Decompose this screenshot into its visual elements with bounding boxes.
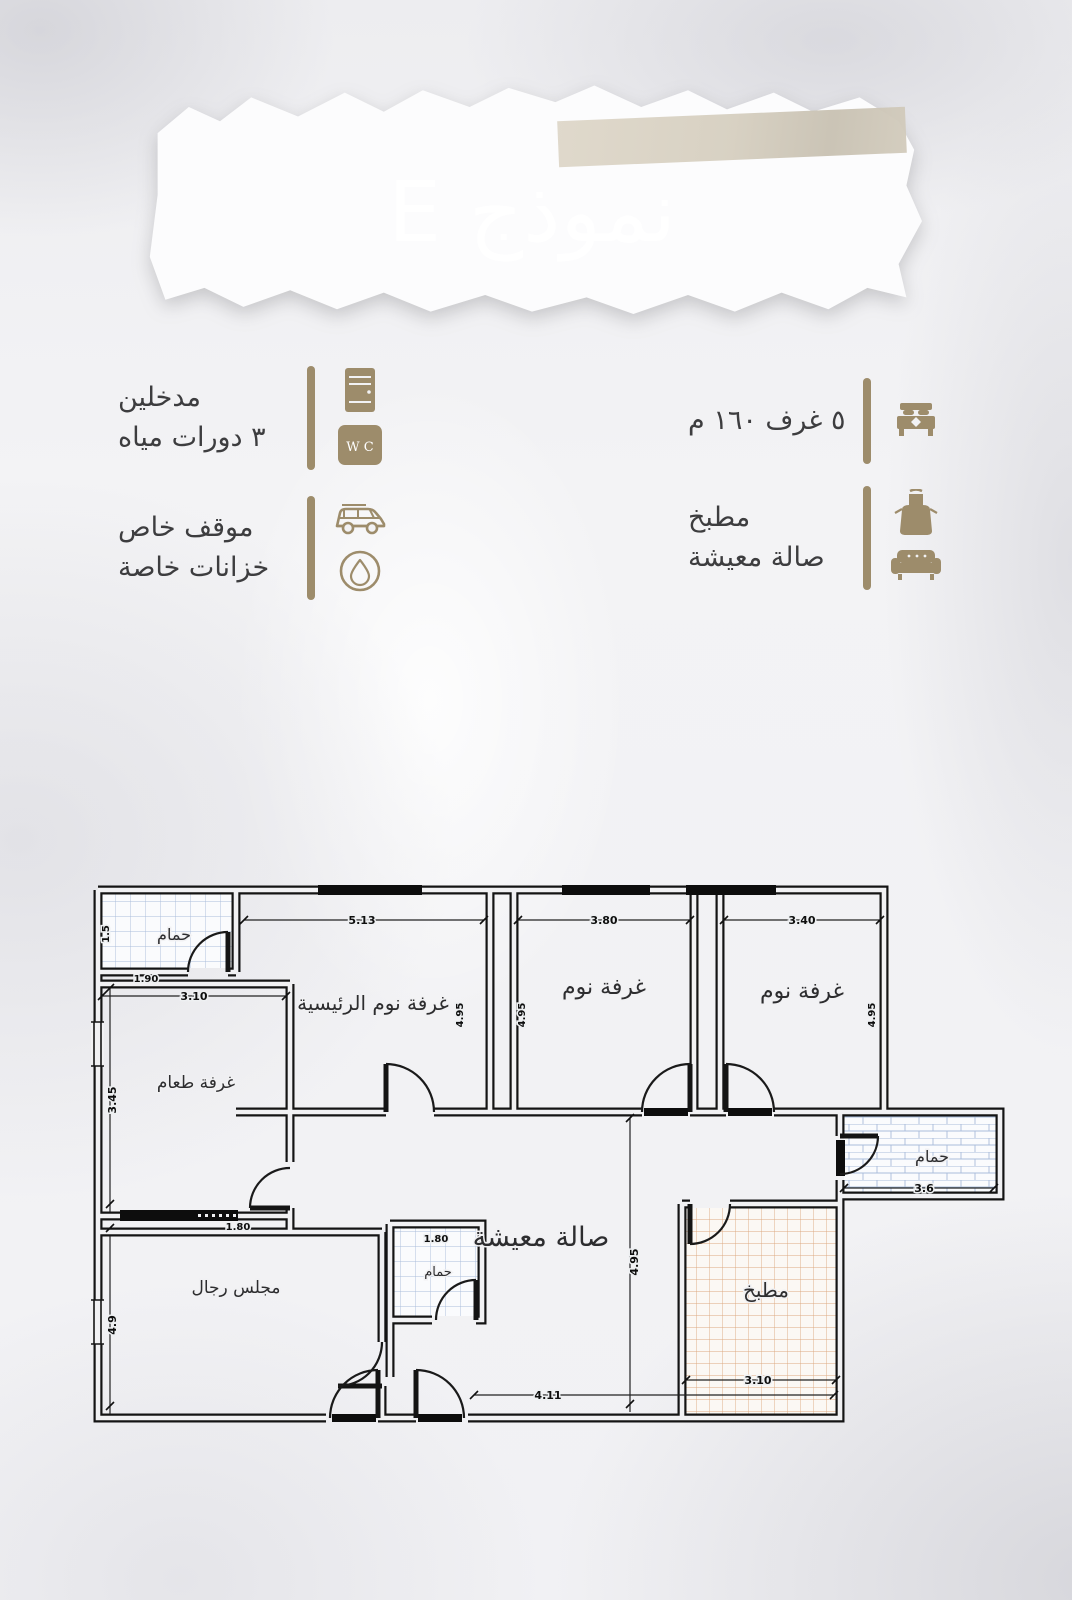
window-bar <box>562 885 650 895</box>
room-bedroom-2: غرفة نوم <box>562 975 646 1000</box>
dim-bath1-w: 1.90 <box>134 974 159 985</box>
svg-text:W C: W C <box>346 440 373 455</box>
dim-majlis-side: 4.9 <box>106 1315 119 1335</box>
window-bar <box>318 885 422 895</box>
floor-plan: 5.13 3.80 3.40 3.10 3.45 4.9 1.80 4.95 4… <box>86 872 1006 1432</box>
feature-kitchen-label: مطبخ <box>688 498 846 538</box>
dim-bed2-side: 4.95 <box>517 1003 528 1028</box>
dim-dining-side: 3.45 <box>106 1086 119 1113</box>
entrance-sill <box>332 1414 376 1422</box>
dim-living-bottom: 4.11 <box>534 1389 561 1402</box>
door-icon <box>341 366 379 418</box>
room-bath-right: حمام <box>915 1147 949 1166</box>
wc-icon: W C <box>337 424 383 470</box>
feature-rooms-area-label: ٥ غرف ١٦٠ م <box>688 401 846 441</box>
feature-bathrooms-label: ٣ دورات مياه <box>118 418 290 458</box>
dim-bath-right-w: 3.6 <box>914 1182 934 1195</box>
feature-living-label: صالة معيشة <box>688 538 846 578</box>
divider-bar <box>307 366 315 470</box>
room-dining: غرفة طعام <box>157 1073 235 1093</box>
divider-bar <box>863 378 871 464</box>
dim-master-top: 5.13 <box>348 914 375 927</box>
dim-bed2-top: 3.80 <box>590 914 617 927</box>
car-icon <box>332 498 388 542</box>
counter-hatch <box>120 1210 238 1221</box>
window-bar <box>686 885 776 895</box>
model-title: نموذج E <box>150 84 914 306</box>
feature-parking-tanks: موقف خاص خزانات خاصة <box>118 496 388 600</box>
feature-tanks-label: خزانات خاصة <box>118 548 290 588</box>
room-living: صالة معيشة <box>473 1222 610 1253</box>
dim-majlis-top: 1.80 <box>226 1222 251 1233</box>
door-sill <box>836 1140 845 1176</box>
room-bedroom-3: غرفة نوم <box>760 979 844 1004</box>
feature-kitchen-living: مطبخ صالة معيشة <box>688 486 944 590</box>
entrance-sill <box>418 1414 462 1422</box>
feature-entrances-wc: مدخلين ٣ دورات مياه W C <box>118 366 388 470</box>
door-sill <box>644 1108 688 1116</box>
dim-bath-small-w: 1.80 <box>424 1234 449 1245</box>
dim-bed3-top: 3.40 <box>788 914 815 927</box>
bed-icon <box>892 397 940 445</box>
dim-bath1-h: 1.5 <box>101 925 112 943</box>
sofa-icon <box>889 547 943 587</box>
dim-living-mid: 4.95 <box>628 1248 641 1275</box>
room-bath-small: حمام <box>424 1265 452 1280</box>
room-majlis: مجلس رجال <box>191 1278 280 1298</box>
room-bath-top-left: حمام <box>157 925 191 944</box>
title-banner: نموذج E <box>150 84 914 306</box>
feature-entrances-label: مدخلين <box>118 378 290 418</box>
water-tank-icon <box>337 548 383 598</box>
divider-bar <box>863 486 871 590</box>
feature-parking-label: موقف خاص <box>118 508 290 548</box>
dim-dining-top: 3.10 <box>180 990 207 1003</box>
feature-rooms-area: ٥ غرف ١٦٠ م <box>688 378 944 464</box>
apron-icon <box>894 489 938 541</box>
poster-page: نموذج E مدخلين ٣ دورات مياه W C <box>0 0 1072 1600</box>
room-master-bedroom: غرفة نوم الرئيسية <box>297 991 449 1015</box>
door-sill <box>728 1108 772 1116</box>
room-kitchen: مطبخ <box>743 1278 789 1302</box>
dim-master-side: 4.95 <box>455 1003 466 1028</box>
dim-kitchen-bottom: 3.10 <box>744 1374 771 1387</box>
divider-bar <box>307 496 315 600</box>
dim-bed3-side: 4.95 <box>867 1003 878 1028</box>
